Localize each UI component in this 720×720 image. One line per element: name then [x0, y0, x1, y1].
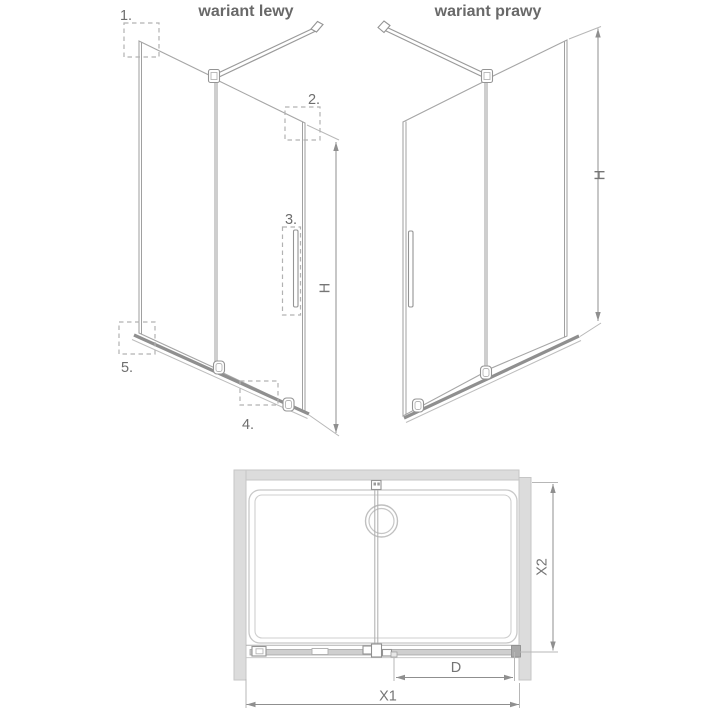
plan-view-drawing: D X1 X2	[234, 470, 558, 708]
right-roller-rear	[481, 366, 492, 379]
plan-left-bracket	[252, 647, 266, 657]
callout-1-label: 1.	[120, 8, 132, 24]
plan-wall-profile-bracket	[512, 646, 521, 658]
right-bar-wall-anchor	[378, 21, 390, 33]
left-variant-title: wariant lewy	[197, 3, 293, 20]
callout-4: 4.	[240, 381, 278, 433]
callout-2-label: 2.	[308, 92, 320, 108]
left-door-handle	[294, 230, 299, 307]
right-variant-drawing: wariant prawy	[378, 3, 609, 423]
shower-door-technical-diagram: wariant lewy	[0, 0, 720, 720]
callout-5: 5.	[119, 322, 155, 376]
right-bar-glass-clamp	[482, 70, 493, 83]
right-sliding-door-glass	[403, 81, 485, 416]
left-bar-glass-clamp	[209, 70, 220, 83]
callout-5-label: 5.	[121, 360, 133, 376]
shower-tray-outer	[249, 490, 517, 643]
left-support-bar	[209, 22, 324, 83]
left-fixed-panel-glass	[139, 41, 215, 368]
left-sliding-door-glass	[217, 80, 305, 412]
left-variant-drawing: wariant lewy	[119, 3, 339, 436]
depth-dimension-label: X2	[535, 558, 551, 576]
plan-top-wall	[234, 470, 519, 480]
left-height-dimension-label: H	[318, 283, 334, 293]
right-height-dimension-label: H	[593, 170, 609, 180]
right-support-bar	[378, 21, 493, 83]
total-width-dimension-label: X1	[379, 689, 397, 705]
right-bottom-rail-shadow	[406, 341, 581, 423]
right-height-dimension: H	[569, 27, 609, 337]
right-roller-front	[413, 399, 424, 412]
plan-left-wall	[234, 470, 246, 680]
left-height-dimension: H	[307, 125, 339, 436]
door-width-dimension: D	[394, 652, 515, 681]
right-fixed-panel-glass	[487, 40, 567, 370]
left-bottom-rail-shadow	[132, 340, 308, 419]
plan-door-track	[246, 644, 521, 658]
right-variant-title: wariant prawy	[434, 3, 542, 20]
left-roller-front	[214, 361, 225, 374]
callout-3-label: 3.	[285, 212, 297, 228]
callout-4-label: 4.	[242, 417, 254, 433]
right-door-handle	[409, 231, 414, 307]
left-bar-wall-anchor	[311, 22, 323, 33]
door-width-dimension-label: D	[451, 660, 461, 676]
left-roller-rear	[283, 398, 294, 411]
total-width-dimension: X1	[246, 679, 520, 708]
plan-guide-block	[312, 649, 328, 655]
